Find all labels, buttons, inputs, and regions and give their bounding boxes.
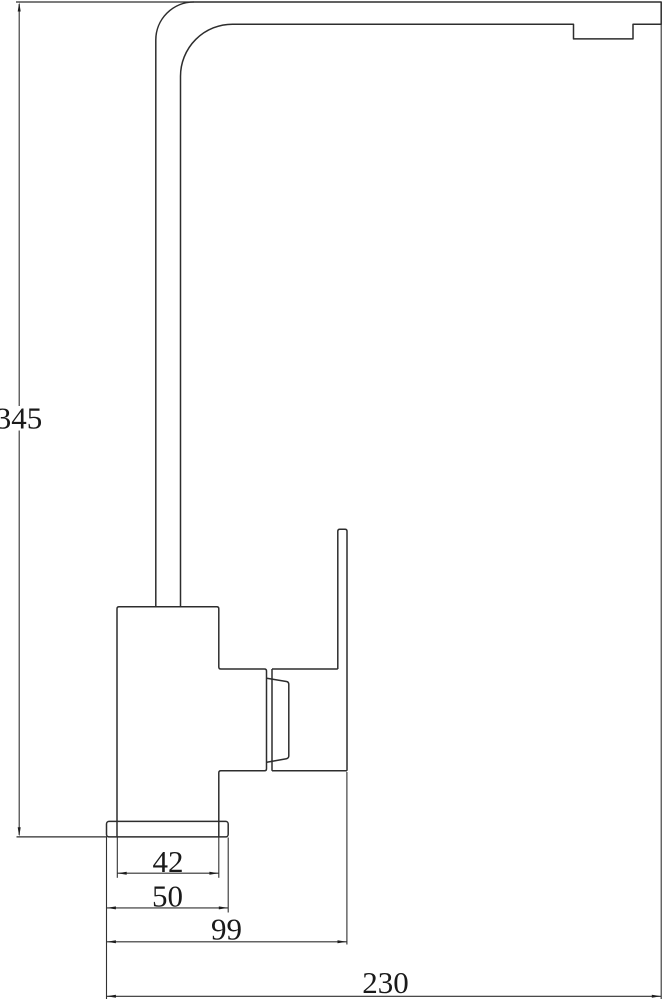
svg-text:42: 42 bbox=[153, 844, 184, 879]
svg-text:50: 50 bbox=[152, 879, 183, 914]
svg-text:345: 345 bbox=[0, 401, 42, 436]
svg-text:99: 99 bbox=[211, 912, 242, 947]
svg-text:230: 230 bbox=[362, 965, 409, 1000]
